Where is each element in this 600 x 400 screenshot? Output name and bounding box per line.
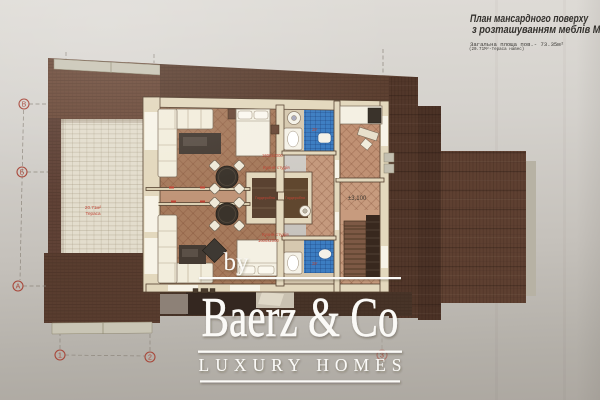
svg-text:20.71м²: 20.71м²	[85, 205, 102, 210]
svg-text:Гардеробна: Гардеробна	[255, 196, 275, 200]
svg-text:ЗУ: ЗУ	[312, 127, 318, 132]
svg-text:1600х2000: 1600х2000	[262, 153, 283, 158]
svg-text:А: А	[16, 284, 21, 291]
svg-text:±3,100: ±3,100	[348, 196, 367, 202]
svg-text:Кухня-студія: Кухня-студія	[262, 232, 289, 237]
svg-text:by: by	[224, 249, 250, 276]
svg-text:LUXURY HOMES: LUXURY HOMES	[199, 355, 402, 375]
svg-text:ЗУ: ЗУ	[312, 261, 318, 266]
svg-text:Baerz & Co: Baerz & Co	[202, 287, 399, 349]
svg-text:Б: Б	[20, 170, 25, 177]
svg-text:1: 1	[58, 353, 62, 360]
svg-text:В: В	[22, 102, 27, 109]
svg-text:Кухня-студія: Кухня-студія	[263, 165, 290, 170]
svg-text:Тераса: Тераса	[85, 211, 101, 216]
svg-text:2: 2	[148, 355, 152, 362]
svg-text:Гардеробна: Гардеробна	[285, 196, 305, 200]
svg-text:1600х2000: 1600х2000	[258, 238, 279, 243]
